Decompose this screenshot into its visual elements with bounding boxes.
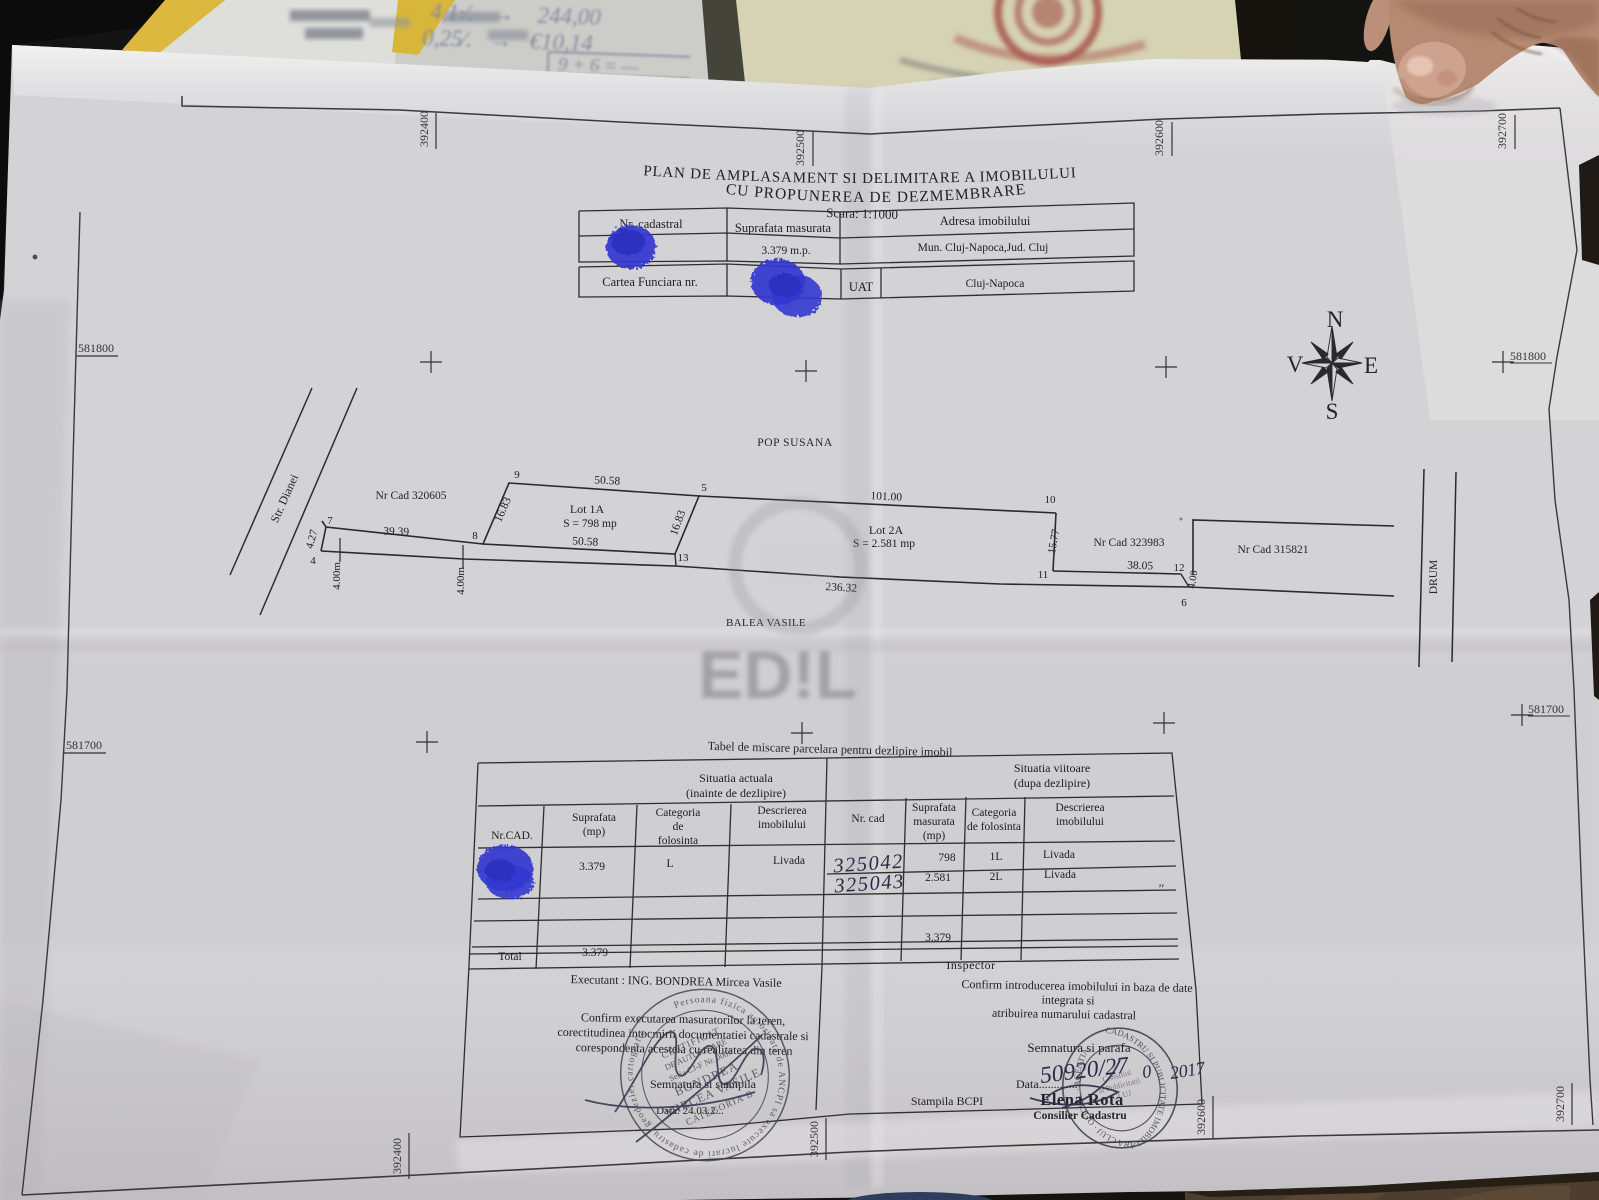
svg-text:10: 10: [1045, 494, 1057, 506]
svg-text:4: 4: [310, 555, 316, 567]
svg-text:9: 9: [514, 469, 520, 481]
svg-text:L: L: [666, 858, 673, 870]
svg-text:(inainte de dezlipire): (inainte de dezlipire): [686, 786, 786, 800]
svg-text:DRUM: DRUM: [1428, 560, 1440, 595]
svg-text:581800: 581800: [1510, 349, 1546, 363]
svg-text:7: 7: [327, 515, 333, 527]
svg-text:392400: 392400: [417, 111, 431, 147]
svg-text:392500: 392500: [807, 1121, 821, 1157]
svg-text:S = 798 mp: S = 798 mp: [563, 518, 617, 530]
svg-text:Lot 2A: Lot 2A: [869, 523, 904, 537]
svg-text:N: N: [1327, 307, 1344, 332]
svg-text:3.379: 3.379: [582, 947, 608, 959]
svg-text:3.379: 3.379: [925, 932, 951, 944]
svg-text:5: 5: [701, 482, 707, 494]
svg-text:581800: 581800: [78, 341, 114, 355]
svg-text:39.39: 39.39: [383, 526, 410, 539]
svg-text:Nr.CAD.: Nr.CAD.: [491, 830, 533, 842]
svg-text:581700: 581700: [66, 738, 102, 752]
svg-text:4.00m: 4.00m: [455, 567, 467, 595]
svg-text:S: S: [1326, 399, 1339, 424]
svg-text:Situatia viitoare: Situatia viitoare: [1014, 761, 1090, 775]
svg-text:atribuirea numarului cadastral: atribuirea numarului cadastral: [992, 1006, 1137, 1023]
svg-text:imobilului: imobilului: [1056, 816, 1104, 828]
svg-text:798: 798: [938, 852, 956, 864]
svg-text:Descrierea: Descrierea: [757, 805, 806, 817]
svg-text:Livada: Livada: [1044, 869, 1076, 881]
svg-text:masurata: masurata: [913, 816, 955, 828]
svg-text:392700: 392700: [1553, 1086, 1567, 1122]
svg-text:3.379 m.p.: 3.379 m.p.: [761, 245, 810, 257]
svg-text:392500: 392500: [793, 130, 807, 166]
svg-text:Consilier Cadastru: Consilier Cadastru: [1033, 1110, 1127, 1122]
svg-text:(mp): (mp): [923, 830, 946, 842]
svg-text:Descrierea: Descrierea: [1055, 802, 1104, 814]
svg-text:11: 11: [1038, 569, 1049, 581]
svg-text:Inspector: Inspector: [946, 958, 995, 972]
svg-text:Stampila BCPI: Stampila BCPI: [911, 1094, 983, 1108]
svg-text:Nr. cad: Nr. cad: [851, 813, 884, 825]
svg-text:1L: 1L: [990, 851, 1003, 863]
svg-text:Nr Cad 323983: Nr Cad 323983: [1094, 537, 1165, 549]
svg-text:imobilului: imobilului: [758, 819, 806, 831]
svg-text:(mp): (mp): [583, 826, 606, 838]
svg-text:Adresa imobilului: Adresa imobilului: [940, 214, 1031, 228]
svg-text:de: de: [673, 821, 684, 833]
svg-text:8: 8: [472, 530, 478, 542]
svg-text:12: 12: [1174, 562, 1185, 574]
svg-text:Categoria: Categoria: [972, 807, 1017, 819]
svg-text:392700: 392700: [1495, 113, 1509, 149]
svg-text:392400: 392400: [390, 1138, 404, 1174]
svg-text:Nr Cad 315821: Nr Cad 315821: [1238, 544, 1309, 556]
svg-text:13: 13: [678, 552, 690, 564]
svg-text:6: 6: [1181, 597, 1187, 609]
svg-text:ED!L: ED!L: [698, 637, 857, 713]
svg-text:POP SUSANA: POP SUSANA: [757, 437, 833, 449]
svg-text:2.581: 2.581: [925, 872, 951, 884]
svg-text:E: E: [1364, 353, 1378, 378]
svg-text:Livada: Livada: [773, 855, 805, 867]
svg-text:Categoria: Categoria: [656, 807, 701, 819]
svg-text:2L: 2L: [990, 871, 1003, 883]
svg-text:38.05: 38.05: [1127, 560, 1154, 573]
svg-text:Suprafata masurata: Suprafata masurata: [735, 221, 832, 235]
svg-text:Suprafata: Suprafata: [572, 812, 616, 824]
svg-text:4.00m: 4.00m: [331, 562, 343, 590]
svg-text:V: V: [1287, 352, 1304, 377]
svg-text:Cartea Funciara nr.: Cartea Funciara nr.: [602, 275, 697, 289]
svg-text:Situatia actuala: Situatia actuala: [699, 771, 773, 785]
svg-text:(dupa dezlipire): (dupa dezlipire): [1014, 776, 1090, 790]
svg-text:Nr Cad 320605: Nr Cad 320605: [376, 490, 447, 502]
svg-text:folosinta: folosinta: [658, 835, 698, 847]
svg-text:101.00: 101.00: [870, 490, 902, 504]
svg-text:Cluj-Napoca: Cluj-Napoca: [966, 278, 1025, 290]
svg-text:3.379: 3.379: [579, 861, 605, 873]
svg-text:Livada: Livada: [1043, 849, 1075, 861]
svg-text:581700: 581700: [1528, 702, 1564, 716]
svg-text:50.58: 50.58: [572, 535, 599, 548]
svg-text:Mun. Cluj-Napoca,Jud. Cluj: Mun. Cluj-Napoca,Jud. Cluj: [918, 242, 1049, 254]
svg-text:392600: 392600: [1152, 120, 1166, 156]
svg-text:UAT: UAT: [849, 280, 874, 294]
svg-text:Lot 1A: Lot 1A: [570, 502, 605, 516]
svg-text:Total: Total: [498, 951, 521, 963]
svg-text:Scara: 1:1000: Scara: 1:1000: [826, 205, 898, 222]
svg-text:⁠ʹʹ: ⁠ʹʹ: [1158, 881, 1164, 896]
svg-text:integrata si: integrata si: [1041, 993, 1095, 1008]
svg-text:50.58: 50.58: [594, 474, 621, 487]
svg-text:de folosinta: de folosinta: [967, 821, 1021, 833]
svg-text:Suprafata: Suprafata: [912, 802, 956, 814]
